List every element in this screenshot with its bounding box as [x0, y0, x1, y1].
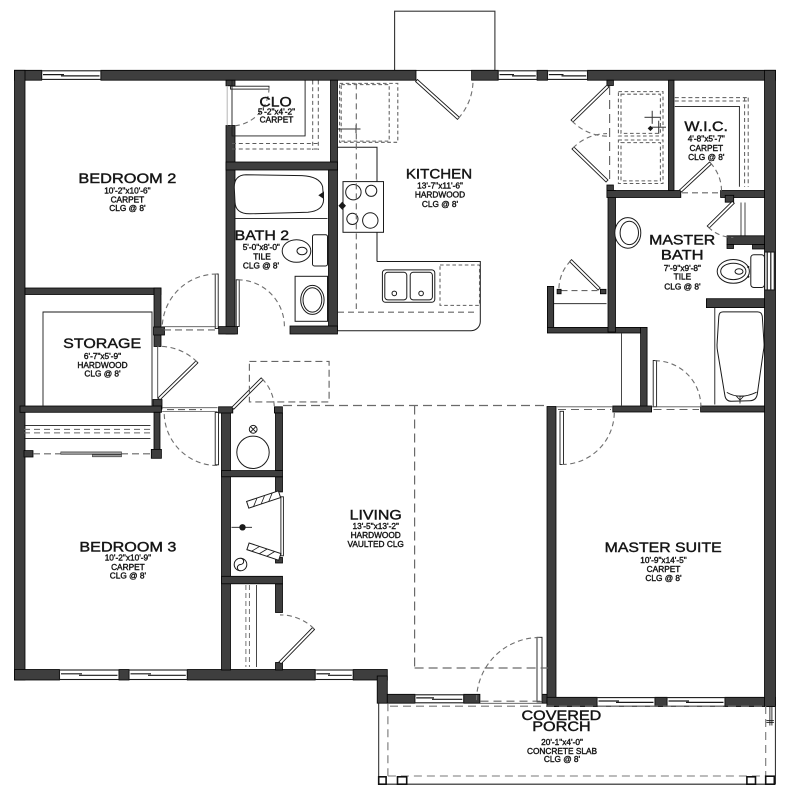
svg-text:BATH: BATH: [661, 247, 704, 262]
svg-text:CLG @ 8': CLG @ 8': [688, 152, 725, 162]
svg-text:MASTER: MASTER: [649, 233, 715, 248]
svg-text:CLG @ 8': CLG @ 8': [664, 281, 701, 291]
svg-text:CLG @ 8': CLG @ 8': [110, 571, 147, 581]
svg-text:W.I.C.: W.I.C.: [684, 119, 728, 134]
svg-text:CLG @ 8': CLG @ 8': [243, 260, 280, 270]
svg-text:MASTER SUITE: MASTER SUITE: [605, 540, 722, 555]
svg-text:BATH 2: BATH 2: [235, 228, 290, 243]
svg-text:VAULTED CLG: VAULTED CLG: [347, 539, 403, 549]
svg-text:CLG @ 8': CLG @ 8': [84, 368, 121, 378]
svg-text:CLG @ 8': CLG @ 8': [422, 199, 459, 209]
svg-text:BEDROOM 2: BEDROOM 2: [78, 171, 176, 186]
svg-text:CLG @ 8': CLG @ 8': [109, 203, 146, 213]
svg-text:CLG @ 8': CLG @ 8': [645, 573, 682, 583]
svg-text:TILE: TILE: [674, 272, 692, 282]
svg-text:STORAGE: STORAGE: [63, 336, 141, 351]
svg-text:CLG @ 8': CLG @ 8': [544, 754, 581, 764]
svg-text:4'-8"x5'-7": 4'-8"x5'-7": [688, 133, 725, 143]
svg-text:PORCH: PORCH: [532, 719, 591, 734]
svg-text:CARPET: CARPET: [260, 115, 294, 125]
